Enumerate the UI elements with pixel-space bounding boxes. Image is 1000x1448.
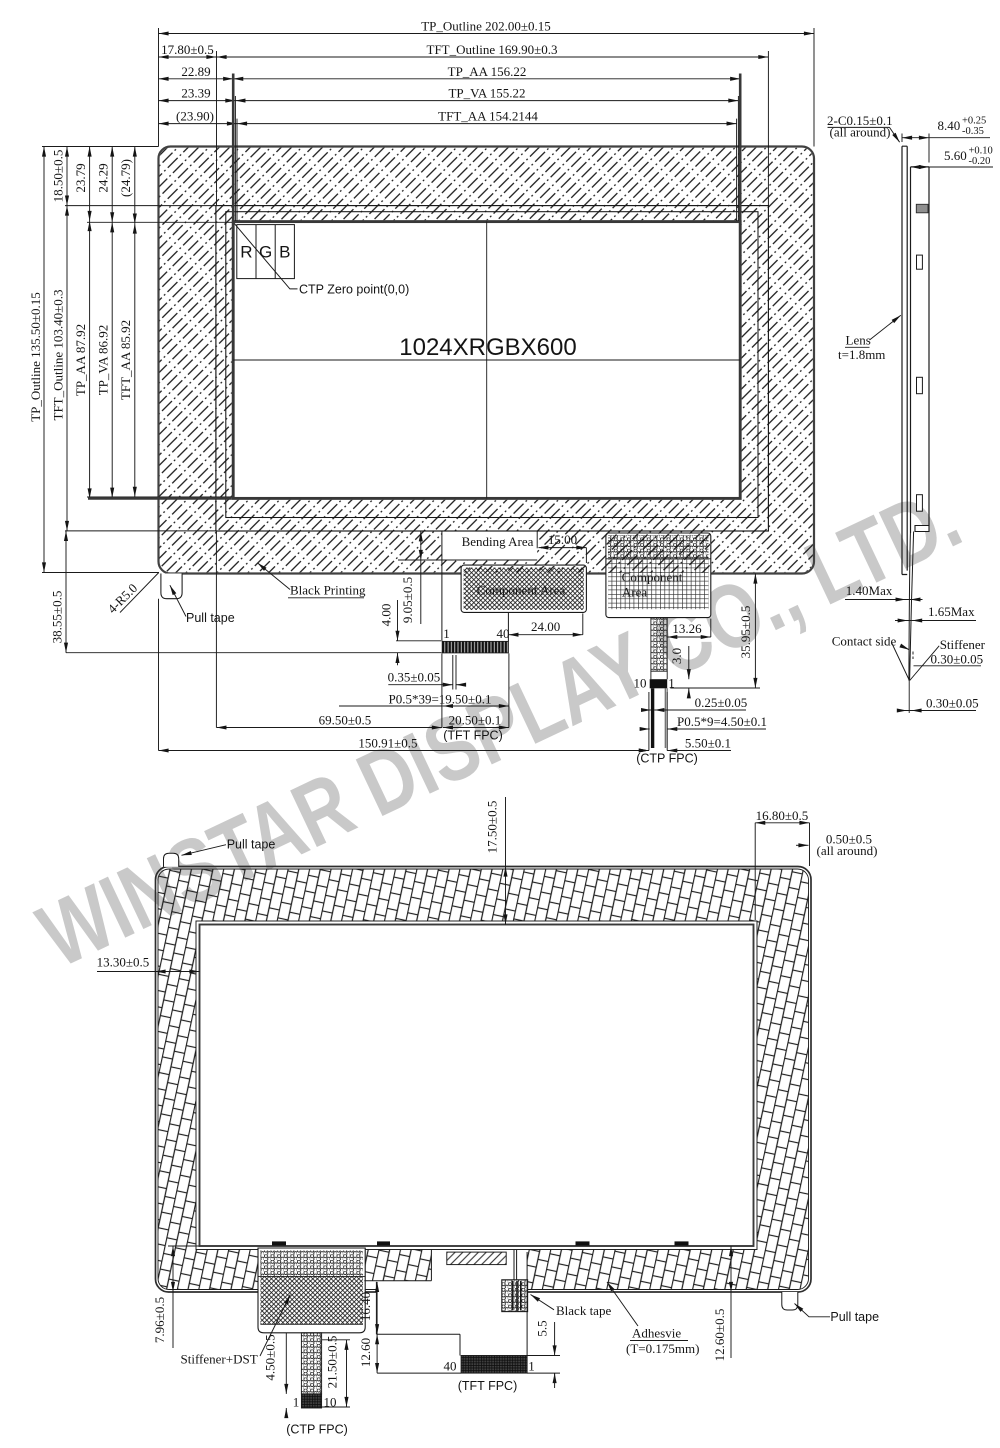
svg-text:0.30±0.05: 0.30±0.05 xyxy=(931,651,984,666)
svg-text:0.25±0.05: 0.25±0.05 xyxy=(695,695,748,710)
svg-text:Lens: Lens xyxy=(846,332,871,347)
svg-text:B: B xyxy=(279,243,290,262)
svg-text:40: 40 xyxy=(497,626,510,641)
svg-text:TFT_AA 154.2144: TFT_AA 154.2144 xyxy=(438,109,538,124)
svg-text:8.40: 8.40 xyxy=(938,118,961,133)
svg-text:(all around): (all around) xyxy=(816,843,877,858)
svg-text:1.40Max: 1.40Max xyxy=(846,583,893,598)
svg-text:0.35±0.05: 0.35±0.05 xyxy=(388,669,441,684)
svg-text:5.50±0.1: 5.50±0.1 xyxy=(685,735,731,750)
svg-text:CTP Zero point(0,0): CTP Zero point(0,0) xyxy=(299,283,409,297)
svg-text:10: 10 xyxy=(634,676,647,691)
svg-text:TP_Outline 202.00±0.15: TP_Outline 202.00±0.15 xyxy=(421,19,551,34)
svg-text:Black tape: Black tape xyxy=(556,1303,611,1318)
svg-text:(CTP FPC): (CTP FPC) xyxy=(636,752,698,766)
svg-text:4.00: 4.00 xyxy=(379,604,394,627)
svg-text:(T=0.175mm): (T=0.175mm) xyxy=(626,1341,699,1356)
svg-text:TP_VA 86.92: TP_VA 86.92 xyxy=(96,325,111,396)
svg-text:150.91±0.5: 150.91±0.5 xyxy=(358,735,417,750)
svg-text:Pull tape: Pull tape xyxy=(227,838,276,852)
svg-text:9.05±0.5: 9.05±0.5 xyxy=(400,577,415,623)
svg-text:G: G xyxy=(259,243,272,262)
svg-text:(23.90): (23.90) xyxy=(176,109,214,124)
svg-text:24.00: 24.00 xyxy=(531,619,560,634)
svg-text:40: 40 xyxy=(444,1358,457,1373)
svg-text:23.79: 23.79 xyxy=(73,163,88,192)
svg-text:69.50±0.5: 69.50±0.5 xyxy=(319,712,372,727)
svg-text:21.50±0.5: 21.50±0.5 xyxy=(325,1336,340,1389)
svg-text:1024XRGBX600: 1024XRGBX600 xyxy=(399,334,576,361)
svg-text:(TFT FPC): (TFT FPC) xyxy=(458,1379,517,1393)
svg-text:TP_AA 156.22: TP_AA 156.22 xyxy=(448,64,527,79)
svg-text:22.89: 22.89 xyxy=(181,64,210,79)
svg-text:20.50±0.1: 20.50±0.1 xyxy=(449,712,502,727)
svg-text:Pull tape: Pull tape xyxy=(186,611,235,625)
svg-text:Stiffener+DST: Stiffener+DST xyxy=(181,1352,258,1367)
svg-text:TP_VA 155.22: TP_VA 155.22 xyxy=(448,86,525,101)
svg-text:5.5: 5.5 xyxy=(535,1320,550,1336)
svg-text:P0.5*9=4.50±0.1: P0.5*9=4.50±0.1 xyxy=(677,714,767,729)
svg-text:(all around): (all around) xyxy=(830,124,891,139)
svg-text:23.39: 23.39 xyxy=(181,86,210,101)
svg-text:12.60±0.5: 12.60±0.5 xyxy=(712,1309,727,1362)
svg-text:18.50±0.5: 18.50±0.5 xyxy=(51,150,66,203)
svg-text:3.0: 3.0 xyxy=(669,648,684,664)
svg-text:13.26: 13.26 xyxy=(672,621,702,636)
svg-text:1: 1 xyxy=(528,1358,535,1373)
svg-text:1: 1 xyxy=(443,626,450,641)
svg-text:1.65Max: 1.65Max xyxy=(928,604,975,619)
svg-text:TFT_Outline 169.90±0.3: TFT_Outline 169.90±0.3 xyxy=(427,42,558,57)
svg-text:24.29: 24.29 xyxy=(96,163,111,192)
svg-text:TP_Outline 135.50±0.15: TP_Outline 135.50±0.15 xyxy=(28,292,43,422)
svg-text:(TFT FPC): (TFT FPC) xyxy=(443,729,502,743)
svg-text:Contact side: Contact side xyxy=(832,634,897,649)
svg-text:Pull tape: Pull tape xyxy=(830,1310,879,1324)
svg-text:+0.10: +0.10 xyxy=(969,146,993,157)
svg-text:38.55±0.5: 38.55±0.5 xyxy=(50,591,65,644)
svg-text:12.60: 12.60 xyxy=(358,1338,373,1367)
svg-text:1: 1 xyxy=(293,1395,300,1410)
svg-text:7.96±0.5: 7.96±0.5 xyxy=(152,1297,167,1343)
svg-text:TP_AA 87.92: TP_AA 87.92 xyxy=(73,324,88,396)
svg-text:13.30±0.5: 13.30±0.5 xyxy=(97,955,150,970)
svg-text:4.50±0.5: 4.50±0.5 xyxy=(263,1334,278,1380)
svg-text:Black Printing: Black Printing xyxy=(290,583,366,598)
svg-text:TFT_Outline 103.40±0.3: TFT_Outline 103.40±0.3 xyxy=(51,290,66,421)
svg-text:17.50±0.5: 17.50±0.5 xyxy=(485,801,500,854)
svg-text:R: R xyxy=(240,243,252,262)
svg-text:16.40: 16.40 xyxy=(358,1292,373,1321)
svg-text:35.95±0.5: 35.95±0.5 xyxy=(738,606,753,659)
svg-text:-0.35: -0.35 xyxy=(962,126,984,137)
svg-text:P0.5*39=19.50±0.1: P0.5*39=19.50±0.1 xyxy=(389,691,492,706)
svg-text:+0.25: +0.25 xyxy=(962,115,986,126)
svg-text:Bending Area: Bending Area xyxy=(462,534,534,549)
svg-text:16.80±0.5: 16.80±0.5 xyxy=(756,808,809,823)
svg-text:-0.20: -0.20 xyxy=(969,156,991,167)
svg-text:(CTP FPC): (CTP FPC) xyxy=(286,1423,348,1437)
svg-text:TFT_AA 85.92: TFT_AA 85.92 xyxy=(118,320,133,400)
svg-text:17.80±0.5: 17.80±0.5 xyxy=(161,42,214,57)
svg-text:(24.79): (24.79) xyxy=(118,159,133,197)
svg-text:Adhesvie: Adhesvie xyxy=(632,1325,681,1340)
svg-text:Stiffener: Stiffener xyxy=(940,637,986,652)
svg-text:15.00: 15.00 xyxy=(548,532,577,547)
svg-text:0.30±0.05: 0.30±0.05 xyxy=(926,696,979,711)
svg-text:t=1.8mm: t=1.8mm xyxy=(838,347,885,362)
svg-text:5.60: 5.60 xyxy=(944,148,967,163)
